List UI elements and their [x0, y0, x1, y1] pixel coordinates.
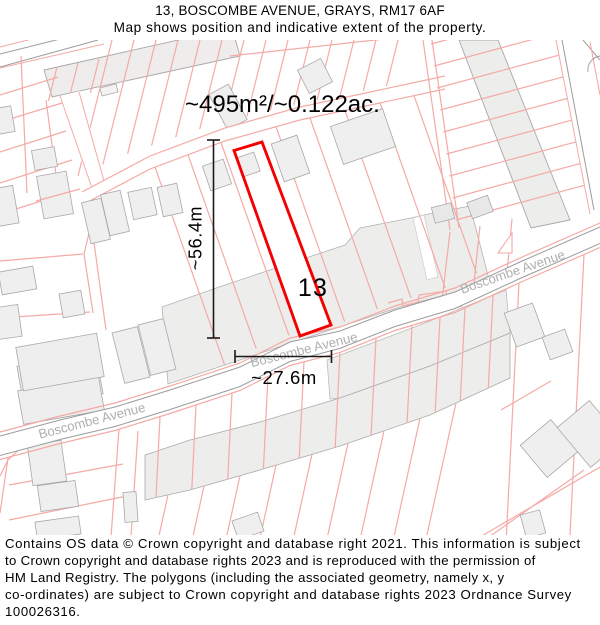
svg-text:13: 13: [298, 274, 328, 302]
svg-text:~495m²/~0.122ac.: ~495m²/~0.122ac.: [185, 91, 380, 118]
svg-text:~56.4m: ~56.4m: [186, 206, 206, 270]
svg-text:~27.6m: ~27.6m: [251, 367, 317, 388]
